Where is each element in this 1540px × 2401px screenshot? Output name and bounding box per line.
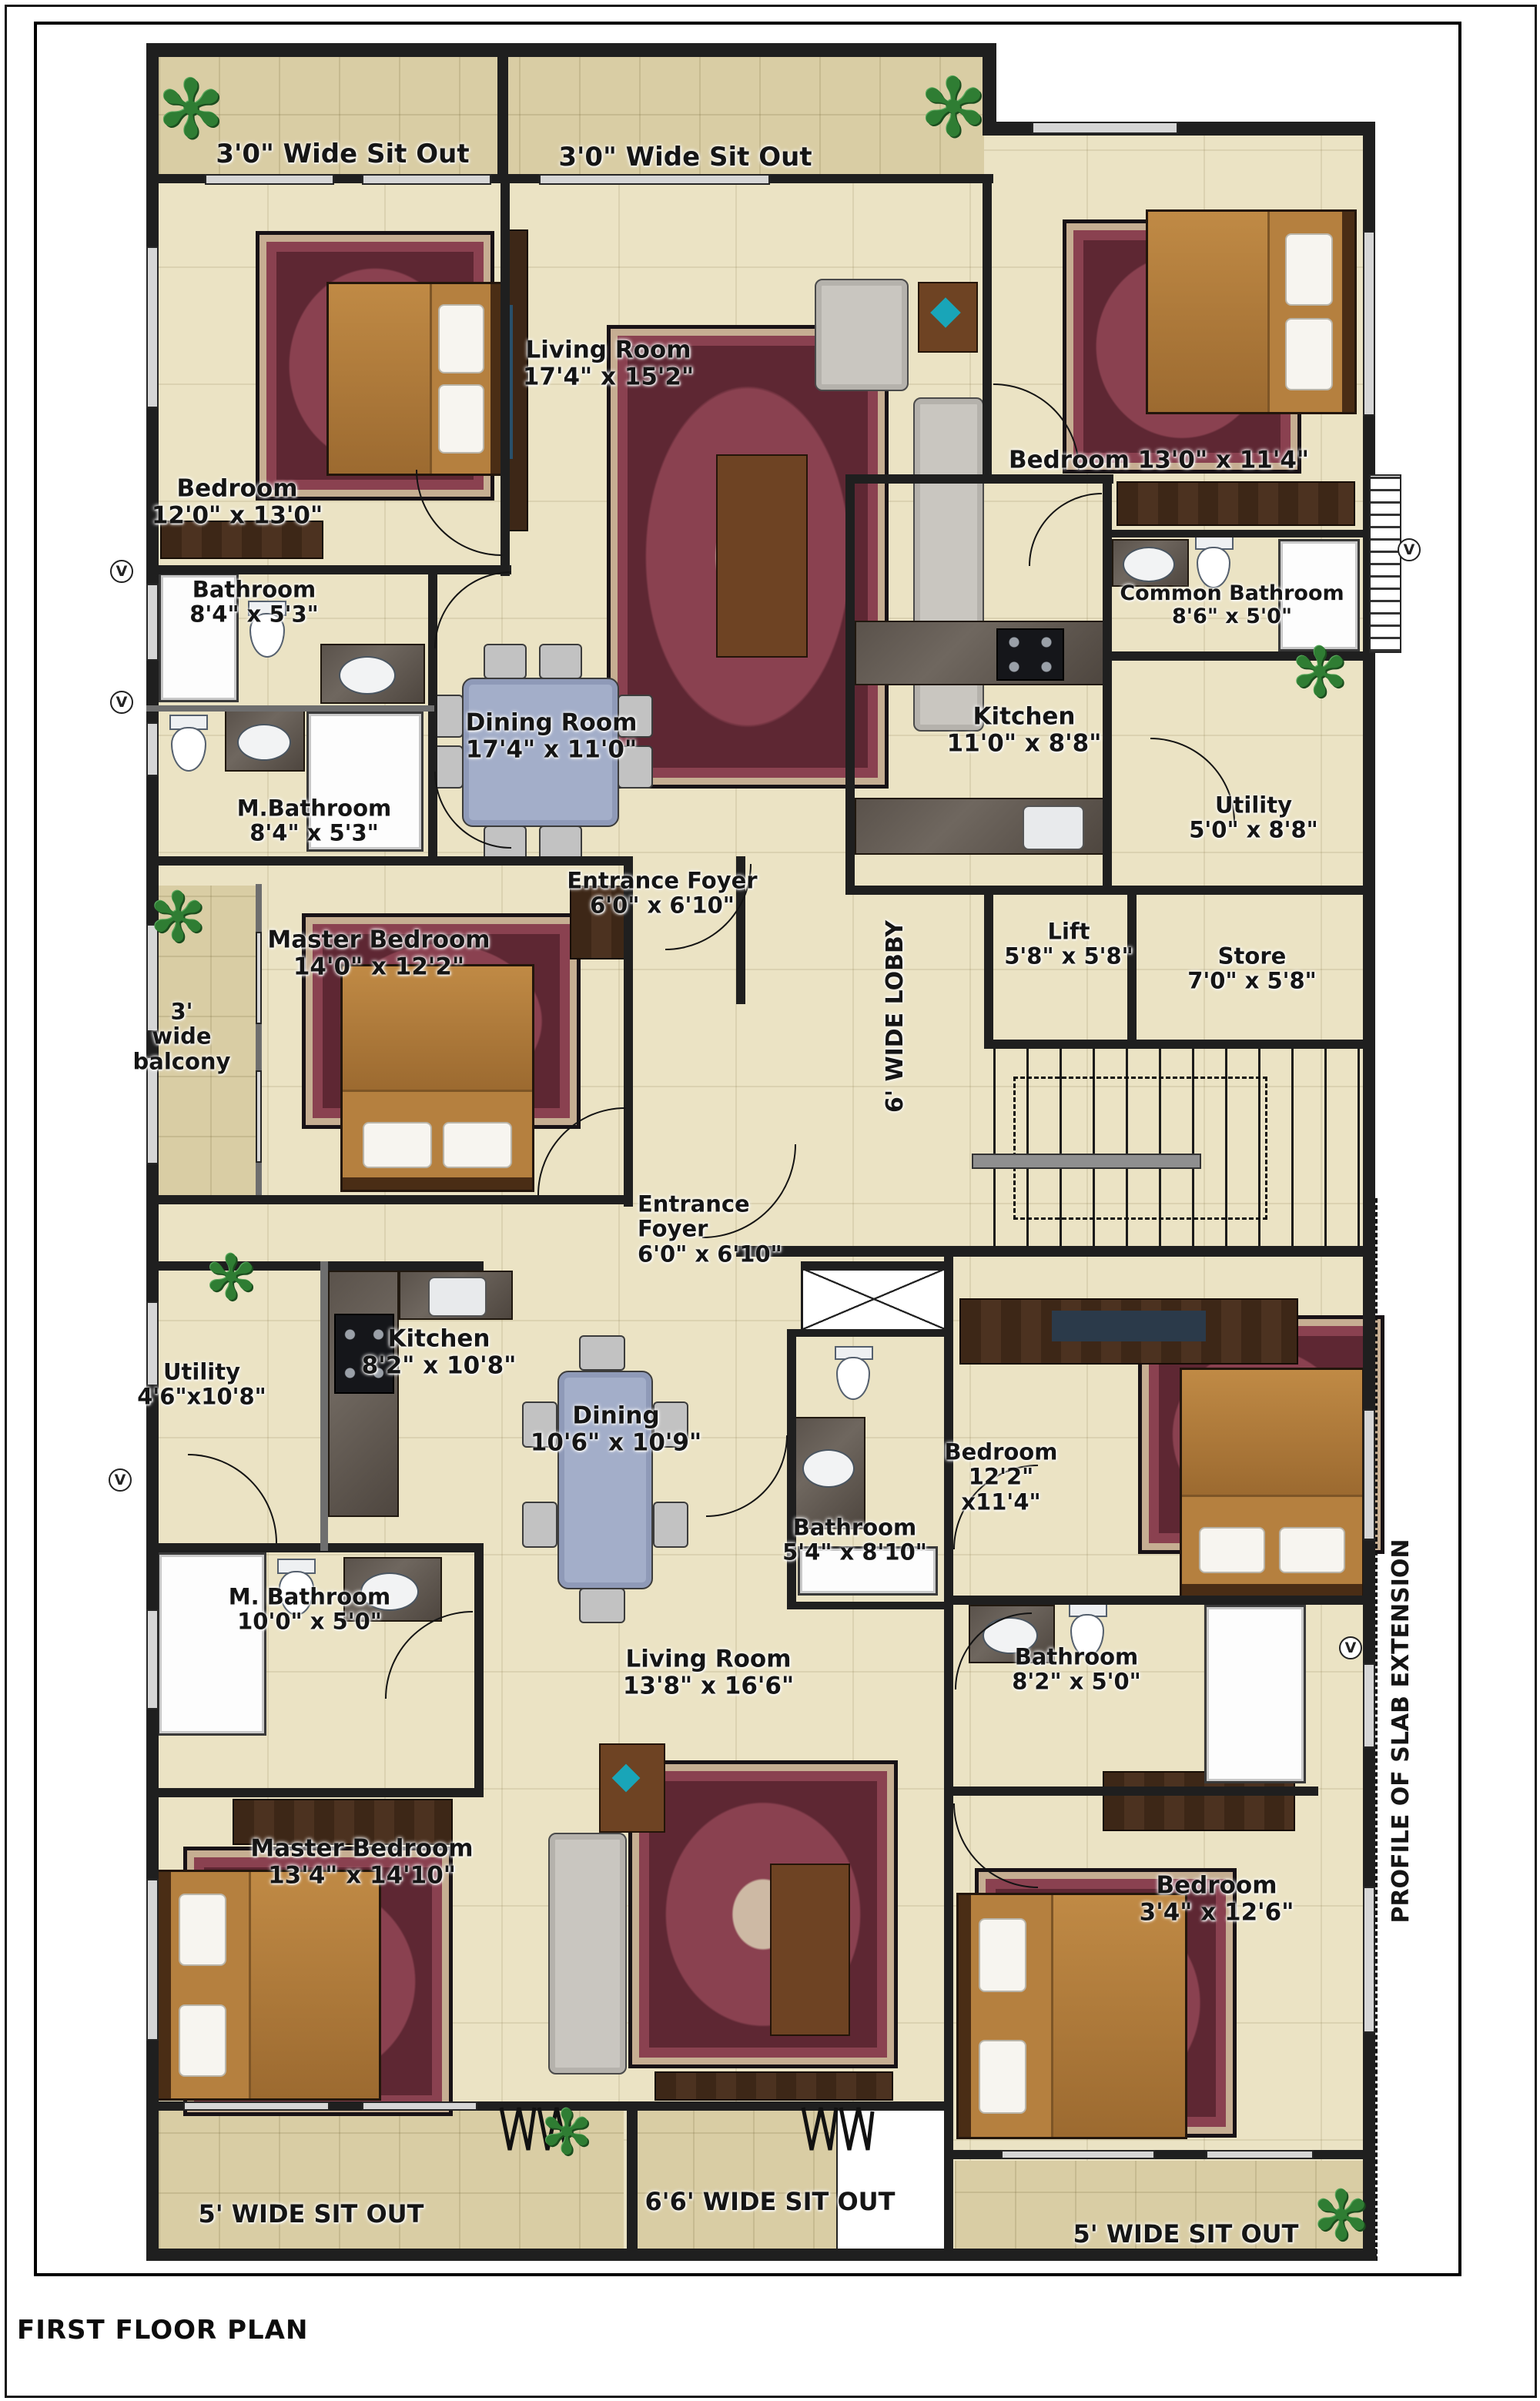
label-master-bedroom-lower: Master Bedroom13'4" x 14'10" [250, 1835, 473, 1888]
plant-icon: ✻ [541, 2102, 592, 2164]
label-profile-slab-extension: PROFILE OF SLAB EXTENSION [1388, 1539, 1414, 1923]
shower-m-bathroom-lower [157, 1552, 266, 1736]
label-bedroom-top-left: Bedroom12'0" x 13'0" [152, 475, 323, 528]
window [1363, 1887, 1375, 2033]
side-table-living-lower [599, 1743, 665, 1833]
bed-bedroom-mid-right [1180, 1368, 1364, 1599]
window [146, 1609, 159, 1709]
wall [146, 2249, 1377, 2261]
plant-icon: ✻ [919, 68, 986, 148]
plant-icon: ✻ [205, 1247, 256, 1309]
wall [944, 1596, 1372, 1605]
label-kitchen-lower: Kitchen8'2" x 10'8" [362, 1325, 517, 1378]
label-dining-lower: Dining10'6" x 10'9" [531, 1402, 701, 1455]
wall [1127, 895, 1137, 1047]
wall [1103, 530, 1372, 537]
wall [736, 1246, 1375, 1257]
label-bedroom-top-right: Bedroom 13'0" x 11'4" [1009, 447, 1309, 474]
window [362, 174, 491, 185]
wall [845, 886, 1375, 895]
bed-master-upper [340, 964, 534, 1192]
kitchen-upper-counter [855, 621, 1104, 685]
wall [146, 1195, 633, 1204]
label-utility-lower: Utility4'6"x10'8" [137, 1360, 266, 1410]
label-bedroom-lower-right: Bedroom3'4" x 12'6" [1140, 1872, 1294, 1925]
wardrobe-bedroom-top-right [1116, 481, 1355, 526]
window [1363, 231, 1375, 416]
wall [787, 1329, 796, 1609]
wall [801, 1261, 953, 1271]
window [183, 2101, 330, 2111]
ventilator-window-bump [1369, 474, 1401, 653]
window-zigzag-icon [801, 2105, 875, 2153]
chair [539, 644, 582, 679]
wall [787, 1602, 952, 1609]
wall [984, 1040, 1375, 1049]
vent-icon: V [110, 560, 133, 583]
label-lift: Lift5'8" x 5'8" [1004, 919, 1133, 969]
stair-landing-bar [972, 1154, 1201, 1169]
shower-bathroom-lower-right [1204, 1605, 1306, 1783]
wall [845, 474, 1113, 484]
label-sitout-bottom-left: 5' WIDE SIT OUT [199, 2201, 424, 2229]
washbasin [237, 724, 291, 761]
label-living-room-lower: Living Room13'8" x 16'6" [623, 1646, 794, 1699]
label-sitout-top-left: 3'0" Wide Sit Out [216, 139, 469, 169]
chair [579, 1588, 625, 1623]
coffee-table-living-upper [716, 454, 808, 658]
label-bedroom-mid-right: Bedroom12'2"x11'4" [945, 1439, 1058, 1514]
vent-icon: V [1339, 1636, 1362, 1659]
vent-icon: V [1398, 538, 1421, 561]
label-common-bathroom: Common Bathroom8'6" x 5'0" [1120, 582, 1344, 628]
sink-kitchen-lower [428, 1277, 487, 1317]
wall [146, 705, 434, 712]
label-sitout-top-mid: 3'0" Wide Sit Out [558, 142, 812, 172]
wall [983, 174, 992, 484]
plant-icon: ✻ [1313, 2182, 1370, 2250]
wall [787, 1329, 952, 1337]
window [539, 174, 770, 185]
label-bathroom-mid: Bathroom5'4" x 8'10" [782, 1515, 927, 1566]
label-kitchen-upper: Kitchen11'0" x 8'8" [947, 703, 1102, 756]
label-m-bathroom-top-left: M.Bathroom8'4" x 5'3" [237, 796, 391, 846]
label-bathroom-lower-right: Bathroom8'2" x 5'0" [1012, 1645, 1141, 1695]
chair [653, 1502, 688, 1548]
label-entrance-foyer-lower: EntranceFoyer 6'0" x 6'10" [638, 1191, 782, 1266]
label-living-room-upper: Living Room17'4" x 15'2" [523, 337, 694, 390]
bed-bedroom-top-left [326, 282, 505, 476]
plant-icon: ✻ [157, 69, 224, 149]
window [256, 1070, 262, 1163]
window [146, 246, 159, 408]
washbasin [1123, 547, 1175, 582]
label-sitout-bottom-mid: 6'6' WIDE SIT OUT [645, 2188, 896, 2216]
armchair-living-upper [815, 279, 909, 391]
label-sitout-bottom-right: 5' WIDE SIT OUT [1073, 2221, 1299, 2249]
stove-kitchen-upper [996, 628, 1064, 681]
bed-bedroom-top-right [1146, 209, 1357, 414]
wall [320, 1261, 328, 1551]
label-m-bathroom-lower: M. Bathroom10'0" x 5'0" [229, 1585, 391, 1635]
label-balcony: 3'widebalcony [133, 999, 231, 1073]
label-bathroom-top-left: Bathroom8'4" x 5'3" [189, 578, 319, 628]
washbasin [339, 656, 396, 695]
wall [146, 1543, 484, 1552]
wall [497, 46, 508, 176]
label-utility-upper: Utility5'0" x 8'8" [1189, 793, 1318, 843]
wall [146, 565, 511, 574]
label-dining-room-upper: Dining Room17'4" x 11'0" [466, 709, 638, 762]
window [205, 174, 334, 185]
wall [984, 895, 993, 1047]
label-store: Store7'0" x 5'8" [1187, 944, 1317, 994]
wall [146, 1261, 484, 1271]
wall [146, 1788, 484, 1797]
window [256, 932, 262, 1024]
bed-master-lower [156, 1870, 381, 2101]
washbasin [802, 1449, 855, 1488]
rug-living-lower [628, 1760, 898, 2068]
sink-kitchen-upper [1023, 805, 1084, 850]
wall [627, 2101, 638, 2257]
plan-title: FIRST FLOOR PLAN [17, 2315, 308, 2346]
slab-extension-dashed-line [1375, 1198, 1378, 2261]
wall [146, 43, 995, 57]
wall [474, 1543, 484, 1797]
wall [428, 565, 437, 866]
duct-shaft [801, 1267, 947, 1331]
tv-console-living-lower [654, 2071, 893, 2101]
chair [579, 1335, 625, 1371]
vent-icon: V [109, 1468, 132, 1492]
window [362, 2101, 477, 2111]
window [1363, 1663, 1375, 1748]
tv-bedroom-mid-right [1052, 1311, 1206, 1341]
chair [484, 644, 527, 679]
chair [522, 1502, 557, 1548]
window [1363, 1409, 1375, 1540]
stair-walk-line [1013, 1077, 1267, 1220]
wall [845, 474, 855, 895]
coffee-table-living-lower [770, 1864, 850, 2036]
top-right-notch [990, 40, 1375, 128]
plant-icon: ✻ [149, 884, 206, 952]
window [1032, 122, 1178, 134]
window [1206, 2150, 1314, 2159]
bed-bedroom-lower-right [956, 1893, 1187, 2139]
label-lobby-vertical: 6' WIDE LOBBY [882, 920, 909, 1113]
floor-plan-page: 3'0" Wide Sit Out3'0" Wide Sit OutBedroo… [0, 0, 1540, 2401]
window [146, 1879, 159, 2041]
vent-icon: V [110, 691, 133, 714]
window [146, 584, 159, 661]
plant-icon: ✻ [1291, 639, 1348, 707]
window [1001, 2150, 1155, 2159]
label-master-bedroom-upper: Master Bedroom14'0" x 12'2" [267, 926, 490, 979]
kitchen-lower-counter-vertical [328, 1271, 399, 1517]
window [146, 722, 159, 776]
wall [146, 856, 633, 866]
sofa-living-lower [548, 1833, 627, 2075]
label-entrance-foyer-upper: Entrance Foyer6'0" x 6'10" [567, 869, 757, 919]
wall [1103, 479, 1112, 895]
wall [944, 1787, 1318, 1796]
